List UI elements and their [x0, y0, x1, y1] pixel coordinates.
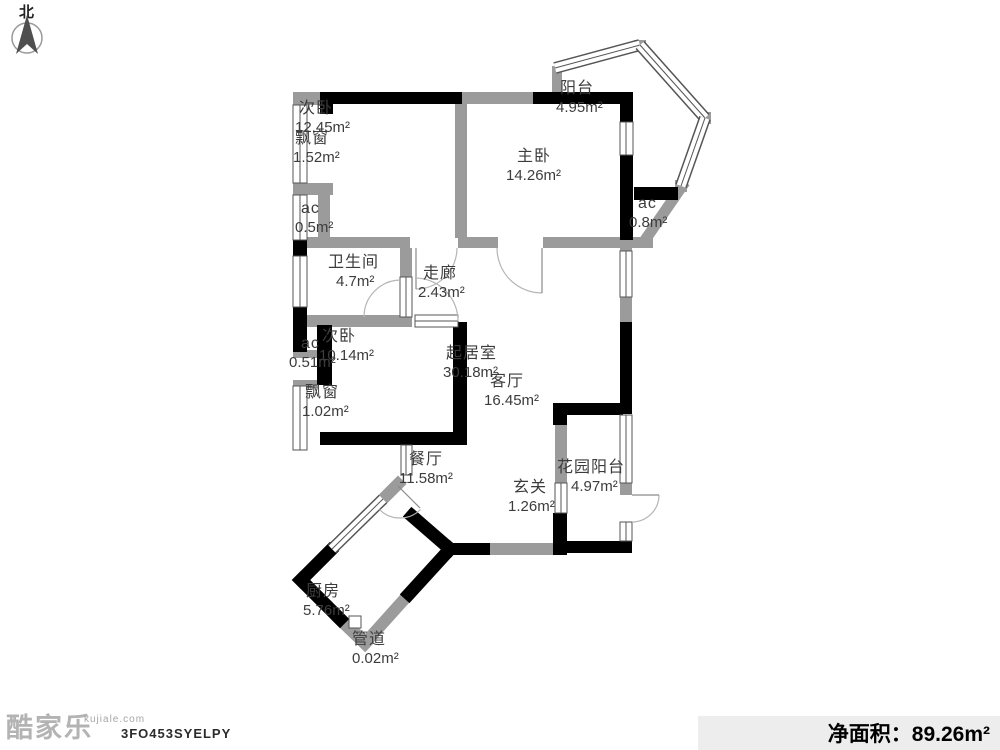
- door-arc-master-bedroom: [497, 248, 542, 293]
- room-label-pipe: 管道 0.02m²: [352, 630, 399, 668]
- room-label-master-bedroom: 主卧 14.26m²: [517, 147, 561, 185]
- kujiale-site-text: kujiale.com: [84, 714, 145, 725]
- room-label-ac-left: ac 0.5m²: [301, 199, 333, 237]
- room-label-ac-right: ac 0.8m²: [638, 194, 667, 232]
- room-label-entry: 玄关 1.26m²: [513, 478, 555, 516]
- room-label-dining-room: 餐厅 11.58m²: [409, 450, 453, 488]
- compass: 北: [12, 4, 42, 54]
- floorplan-canvas: 北 次卧 12.45m² 飘窗 1.52m² 阳台 4.95m² 主卧 14.2…: [0, 0, 1000, 750]
- room-label-bathroom: 卫生间 4.7m²: [328, 253, 379, 291]
- room-label-ac-mid: ac 0.51m²: [301, 334, 336, 372]
- kujiale-logo: 酷家乐: [6, 706, 93, 745]
- room-label-garden-balcony: 花园阳台 4.97m²: [557, 458, 625, 496]
- angled-windows: [332, 45, 705, 549]
- room-label-balcony: 阳台 4.95m²: [560, 79, 603, 117]
- room-label-corridor: 走廊 2.43m²: [423, 264, 465, 302]
- pipe-duct-box: [349, 616, 361, 628]
- room-label-kitchen: 厨房 5.76m²: [306, 582, 350, 620]
- door-arc-entry: [632, 495, 659, 522]
- net-area-text: 净面积：89.26m²: [828, 718, 990, 748]
- plan-code: 3FO453SYELPY: [121, 726, 231, 741]
- net-area-bar: 净面积：89.26m²: [698, 716, 1000, 750]
- room-label-baywindow-top: 飘窗 1.52m²: [295, 129, 340, 167]
- room-label-living-room: 客厅 16.45m²: [490, 372, 539, 410]
- room-label-baywindow-mid: 飘窗 1.02m²: [305, 383, 349, 421]
